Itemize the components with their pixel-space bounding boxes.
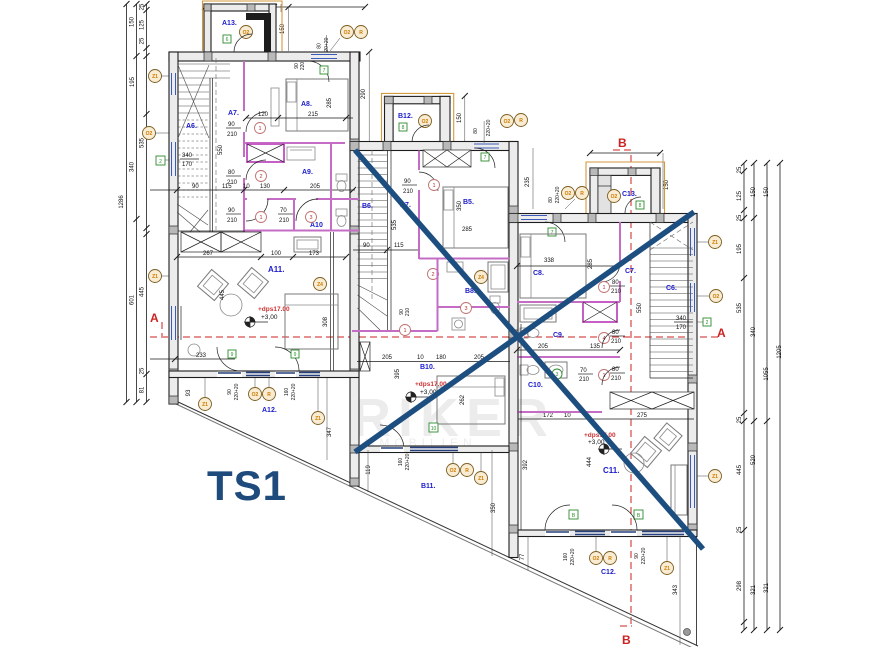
svg-text:C6.: C6. xyxy=(666,285,677,292)
svg-text:90: 90 xyxy=(228,208,235,214)
svg-text:B10.: B10. xyxy=(420,364,435,371)
svg-text:Z1: Z1 xyxy=(315,416,321,422)
svg-text:77: 77 xyxy=(520,553,526,560)
svg-text:220+20: 220+20 xyxy=(405,453,411,470)
svg-text:O2: O2 xyxy=(504,119,511,125)
svg-text:170: 170 xyxy=(182,162,193,168)
svg-text:A7.: A7. xyxy=(228,110,239,117)
svg-text:340: 340 xyxy=(751,326,757,337)
svg-text:220+20: 220+20 xyxy=(486,119,492,136)
svg-text:B5.: B5. xyxy=(463,199,474,206)
svg-text:445: 445 xyxy=(140,286,146,297)
svg-text:B: B xyxy=(618,136,627,150)
svg-text:125: 125 xyxy=(140,19,146,30)
svg-text:233: 233 xyxy=(196,353,207,359)
svg-text:262: 262 xyxy=(460,394,466,405)
svg-text:160: 160 xyxy=(398,458,404,467)
svg-text:210: 210 xyxy=(611,376,622,382)
svg-text:210: 210 xyxy=(227,218,238,224)
svg-text:10: 10 xyxy=(417,355,424,361)
svg-text:100: 100 xyxy=(271,251,282,257)
svg-text:205: 205 xyxy=(310,184,321,190)
svg-text:A: A xyxy=(150,311,159,325)
svg-text:445: 445 xyxy=(220,289,226,300)
svg-text:195: 195 xyxy=(130,76,136,87)
svg-text:2: 2 xyxy=(431,272,434,278)
svg-text:Z4: Z4 xyxy=(317,282,323,288)
svg-text:10: 10 xyxy=(564,413,571,419)
svg-text:150: 150 xyxy=(457,112,463,123)
svg-text:1: 1 xyxy=(432,183,435,189)
svg-text:B11.: B11. xyxy=(421,483,435,490)
svg-text:Z4: Z4 xyxy=(478,275,484,281)
svg-text:210: 210 xyxy=(279,218,290,224)
svg-text:1: 1 xyxy=(259,215,262,221)
svg-text:210: 210 xyxy=(403,189,414,195)
svg-text:90: 90 xyxy=(228,122,235,128)
svg-text:25: 25 xyxy=(140,3,146,10)
svg-text:1: 1 xyxy=(258,126,261,132)
svg-text:150: 150 xyxy=(764,186,770,197)
svg-text:298: 298 xyxy=(737,580,743,591)
svg-text:C7.: C7. xyxy=(625,268,636,275)
svg-text:Z1: Z1 xyxy=(202,402,208,408)
svg-text:1205: 1205 xyxy=(777,345,783,359)
svg-text:2: 2 xyxy=(706,320,709,326)
svg-text:308: 308 xyxy=(323,316,329,327)
svg-text:9: 9 xyxy=(294,352,297,358)
svg-text:220+20: 220+20 xyxy=(234,383,240,400)
svg-text:9: 9 xyxy=(231,352,234,358)
svg-text:10: 10 xyxy=(243,184,250,190)
svg-text:B12.: B12. xyxy=(398,113,413,120)
svg-text:A9.: A9. xyxy=(302,169,313,176)
svg-text:210: 210 xyxy=(611,289,622,295)
svg-text:205: 205 xyxy=(382,355,393,361)
svg-text:A6.: A6. xyxy=(186,123,197,130)
svg-text:220+20: 220+20 xyxy=(641,547,647,564)
svg-text:120: 120 xyxy=(258,112,269,118)
svg-text:267: 267 xyxy=(203,251,214,257)
svg-text:285: 285 xyxy=(327,97,333,108)
svg-text:160: 160 xyxy=(563,553,569,562)
svg-text:B6.: B6. xyxy=(362,203,373,210)
svg-text:25: 25 xyxy=(737,214,743,221)
svg-text:90: 90 xyxy=(227,389,233,395)
svg-text:80: 80 xyxy=(228,170,235,176)
svg-text:7: 7 xyxy=(484,155,487,161)
svg-text:R: R xyxy=(519,118,523,124)
svg-text:C10.: C10. xyxy=(528,382,543,389)
svg-text:535: 535 xyxy=(140,137,146,148)
svg-text:A: A xyxy=(717,326,726,340)
svg-text:160: 160 xyxy=(284,388,290,397)
svg-text:25: 25 xyxy=(140,367,146,374)
svg-text:8: 8 xyxy=(402,125,405,131)
svg-text:535: 535 xyxy=(737,302,743,313)
svg-text:220+20: 220+20 xyxy=(570,548,576,565)
svg-text:O2: O2 xyxy=(611,194,618,200)
svg-text:290: 290 xyxy=(361,88,367,99)
svg-text:210: 210 xyxy=(405,308,411,317)
svg-text:R: R xyxy=(580,191,584,197)
svg-text:O2: O2 xyxy=(450,468,457,474)
svg-text:180: 180 xyxy=(436,355,447,361)
svg-text:90: 90 xyxy=(192,184,199,190)
svg-text:135: 135 xyxy=(590,344,601,350)
svg-text:340: 340 xyxy=(182,153,193,159)
svg-text:25: 25 xyxy=(737,416,743,423)
svg-text:210: 210 xyxy=(579,377,590,383)
svg-text:A10: A10 xyxy=(310,222,323,229)
svg-text:80: 80 xyxy=(612,367,619,373)
svg-text:170: 170 xyxy=(676,325,687,331)
svg-text:1055: 1055 xyxy=(764,367,770,381)
svg-text:TS1: TS1 xyxy=(207,462,287,509)
svg-text:173: 173 xyxy=(309,251,320,257)
svg-text:C12.: C12. xyxy=(601,569,616,576)
svg-text:445: 445 xyxy=(737,464,743,475)
svg-text:220+20: 220+20 xyxy=(291,383,297,400)
svg-text:347: 347 xyxy=(327,426,333,437)
svg-text:7: 7 xyxy=(551,230,554,236)
svg-text:O2: O2 xyxy=(146,131,153,137)
svg-text:C13.: C13. xyxy=(622,191,637,198)
svg-text:321: 321 xyxy=(751,584,757,595)
svg-text:285: 285 xyxy=(462,227,473,233)
svg-text:285: 285 xyxy=(588,258,594,269)
svg-text:2: 2 xyxy=(259,174,262,180)
svg-text:550: 550 xyxy=(637,302,643,313)
svg-text:O2: O2 xyxy=(252,392,259,398)
svg-text:1: 1 xyxy=(403,328,406,334)
svg-text:150: 150 xyxy=(751,186,757,197)
svg-text:3: 3 xyxy=(464,306,467,312)
svg-text:Z1: Z1 xyxy=(664,566,670,572)
svg-text:O2: O2 xyxy=(713,294,720,300)
svg-text:119: 119 xyxy=(366,465,372,475)
svg-text:70: 70 xyxy=(280,208,287,214)
svg-text:1: 1 xyxy=(602,285,605,291)
svg-text:235: 235 xyxy=(525,176,531,187)
svg-text:210: 210 xyxy=(611,339,622,345)
svg-text:8: 8 xyxy=(639,203,642,209)
svg-text:93: 93 xyxy=(186,389,192,396)
svg-text:601: 601 xyxy=(130,294,136,305)
svg-text:80: 80 xyxy=(473,128,479,134)
svg-text:343: 343 xyxy=(673,584,679,595)
svg-text:R: R xyxy=(359,30,363,36)
svg-text:550: 550 xyxy=(218,144,224,155)
svg-text:A12.: A12. xyxy=(262,407,277,414)
svg-text:25: 25 xyxy=(737,526,743,533)
svg-text:C8.: C8. xyxy=(533,270,544,277)
svg-text:210: 210 xyxy=(227,132,238,138)
svg-text:Z1: Z1 xyxy=(712,474,718,480)
svg-text:Z1: Z1 xyxy=(478,476,484,482)
svg-text:321: 321 xyxy=(764,582,770,593)
svg-text:7: 7 xyxy=(323,68,326,74)
svg-text:3: 3 xyxy=(309,215,312,221)
svg-text:215: 215 xyxy=(308,112,319,118)
svg-text:+dps17.00: +dps17.00 xyxy=(258,306,290,313)
svg-text:80: 80 xyxy=(548,197,554,203)
svg-text:535: 535 xyxy=(392,219,398,230)
svg-text:+3,00: +3,00 xyxy=(588,439,605,446)
svg-text:6: 6 xyxy=(226,37,229,43)
svg-text:O2: O2 xyxy=(422,119,429,125)
svg-text:340: 340 xyxy=(130,161,136,172)
svg-text:80: 80 xyxy=(612,280,619,286)
svg-text:1286: 1286 xyxy=(119,195,125,209)
svg-text:O2: O2 xyxy=(344,30,351,36)
svg-text:520: 520 xyxy=(751,454,757,465)
svg-text:150: 150 xyxy=(130,16,136,27)
svg-text:195: 195 xyxy=(737,243,743,254)
svg-text:392: 392 xyxy=(523,459,529,470)
svg-text:C11.: C11. xyxy=(603,466,619,475)
svg-text:Z1: Z1 xyxy=(712,240,718,246)
svg-text:80: 80 xyxy=(612,330,619,336)
svg-text:90: 90 xyxy=(634,553,640,559)
svg-text:C9.: C9. xyxy=(553,332,564,339)
svg-text:125: 125 xyxy=(737,190,743,201)
svg-text:A13.: A13. xyxy=(222,20,237,27)
svg-text:444: 444 xyxy=(587,456,593,467)
svg-text:81: 81 xyxy=(140,386,146,393)
svg-text:A8.: A8. xyxy=(301,101,312,108)
svg-text:338: 338 xyxy=(544,258,555,264)
svg-text:70: 70 xyxy=(580,368,587,374)
svg-text:25: 25 xyxy=(737,166,743,173)
svg-text:Z1: Z1 xyxy=(152,274,158,280)
svg-text:90: 90 xyxy=(404,179,411,185)
svg-text:220: 220 xyxy=(300,62,306,71)
svg-text:10: 10 xyxy=(431,426,437,432)
svg-text:Z1: Z1 xyxy=(152,74,158,80)
svg-text:172: 172 xyxy=(543,413,554,419)
svg-text:275: 275 xyxy=(637,413,648,419)
svg-text:90: 90 xyxy=(363,243,370,249)
svg-text:R: R xyxy=(608,556,612,562)
svg-text:25: 25 xyxy=(140,37,146,44)
svg-text:O2: O2 xyxy=(593,556,600,562)
svg-text:150: 150 xyxy=(280,23,286,34)
svg-text:115: 115 xyxy=(222,184,232,190)
svg-text:+3,00: +3,00 xyxy=(261,314,278,321)
svg-text:80: 80 xyxy=(317,43,323,49)
svg-text:350: 350 xyxy=(457,200,463,211)
svg-text:395: 395 xyxy=(395,368,401,379)
svg-text:R: R xyxy=(465,468,469,474)
svg-text:115: 115 xyxy=(394,243,404,249)
svg-text:A11.: A11. xyxy=(268,265,284,274)
svg-text:220+20: 220+20 xyxy=(555,186,561,203)
svg-text:340: 340 xyxy=(676,316,687,322)
svg-text:O2: O2 xyxy=(565,191,572,197)
svg-text:B: B xyxy=(622,633,631,647)
svg-text:130: 130 xyxy=(260,184,271,190)
svg-text:205: 205 xyxy=(538,344,549,350)
svg-text:R: R xyxy=(267,392,271,398)
svg-text:2: 2 xyxy=(159,159,162,165)
